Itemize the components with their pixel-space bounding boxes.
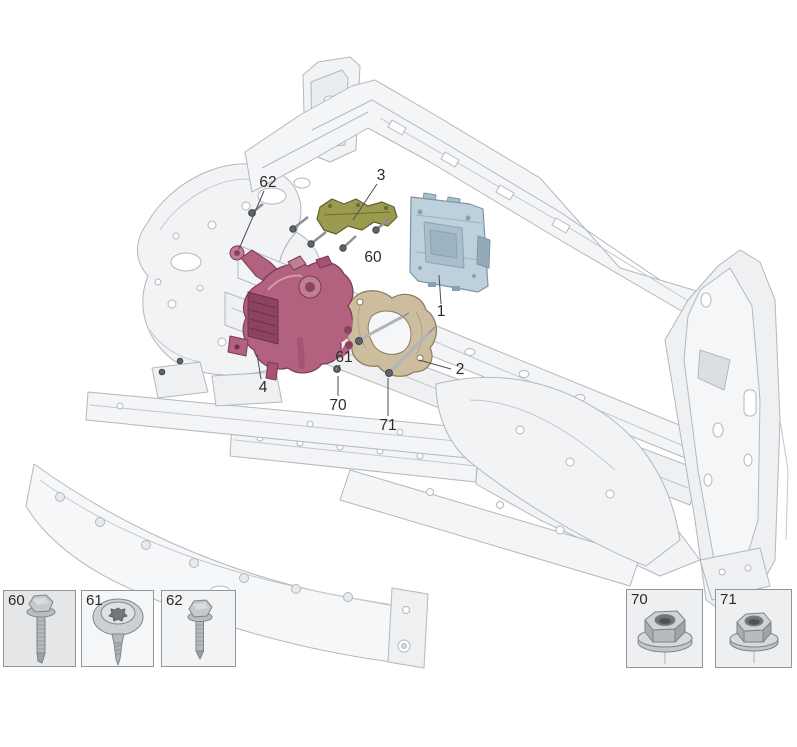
callout-label-2[interactable]: 2 bbox=[456, 361, 465, 378]
callout-label-61[interactable]: 61 bbox=[335, 349, 352, 366]
fastener-box-60-label: 60 bbox=[8, 592, 25, 609]
fastener-box-71-label: 71 bbox=[720, 591, 737, 608]
bolt-60-in-situ bbox=[340, 236, 356, 251]
callout-70[interactable]: 70 bbox=[329, 376, 347, 414]
callout-label-1[interactable]: 1 bbox=[437, 303, 446, 320]
callout-60[interactable]: 60 bbox=[364, 249, 382, 266]
fastener-box-70[interactable]: 70 bbox=[626, 589, 703, 668]
callout-label-4[interactable]: 4 bbox=[259, 379, 268, 396]
fastener-box-71[interactable]: 71 bbox=[715, 589, 792, 668]
callout-label-62[interactable]: 62 bbox=[259, 174, 276, 191]
callout-label-70[interactable]: 70 bbox=[329, 397, 347, 414]
fastener-box-61-label: 61 bbox=[86, 592, 103, 609]
parts-diagram: 62 3 60 1 61 4 2 bbox=[0, 0, 797, 747]
part-3-upper-bracket[interactable] bbox=[317, 199, 397, 234]
bolt-60-in-situ bbox=[308, 232, 326, 247]
fastener-box-70-label: 70 bbox=[631, 591, 648, 608]
callout-label-3[interactable]: 3 bbox=[377, 167, 386, 184]
callout-label-60[interactable]: 60 bbox=[364, 249, 382, 266]
fastener-box-62[interactable]: 62 bbox=[161, 590, 236, 667]
fastener-box-62-label: 62 bbox=[166, 592, 183, 609]
part-1-control-module[interactable] bbox=[410, 193, 490, 292]
fastener-box-60[interactable]: 60 bbox=[3, 590, 76, 667]
fastener-box-61[interactable]: 61 bbox=[81, 590, 154, 667]
callout-label-71[interactable]: 71 bbox=[379, 417, 396, 434]
